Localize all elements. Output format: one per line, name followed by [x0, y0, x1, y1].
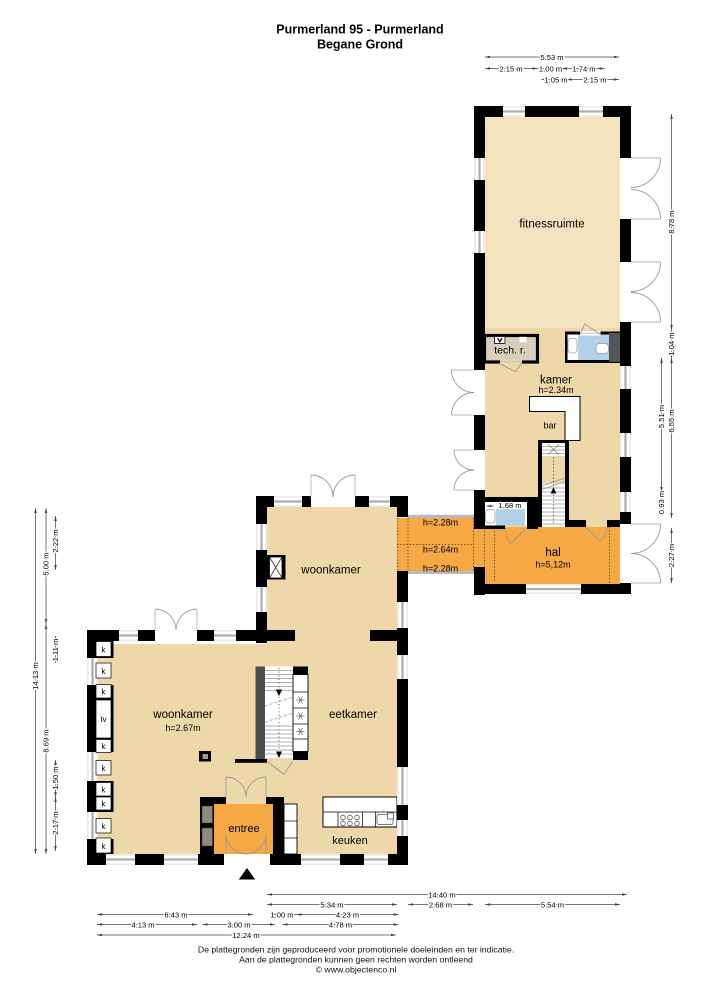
svg-text:k: k: [102, 667, 106, 676]
svg-text:4.23 m: 4.23 m: [336, 910, 359, 919]
svg-text:k: k: [102, 645, 106, 654]
svg-text:k: k: [102, 822, 106, 831]
svg-text:Aan de plattegronden kunnen ge: Aan de plattegronden kunnen geen rechten…: [239, 955, 473, 965]
svg-text:1.00 m: 1.00 m: [539, 64, 562, 73]
svg-text:k: k: [102, 842, 106, 851]
svg-text:2.15 m: 2.15 m: [499, 64, 522, 73]
svg-text:14.40 m: 14.40 m: [428, 890, 455, 899]
svg-text:h=5,12m: h=5,12m: [535, 560, 570, 570]
svg-text:1.04 m: 1.04 m: [667, 332, 676, 355]
svg-text:3.00 m: 3.00 m: [227, 920, 250, 929]
svg-text:De plattegronden zijn geproduc: De plattegronden zijn geproduceerd voor …: [198, 945, 514, 955]
svg-text:keuken: keuken: [332, 835, 367, 847]
svg-text:woonkamer: woonkamer: [152, 709, 213, 721]
svg-text:12.24 m: 12.24 m: [232, 931, 259, 940]
svg-text:5.53 m: 5.53 m: [540, 53, 563, 62]
svg-text:h=2.67m: h=2.67m: [165, 723, 200, 733]
svg-text:1.50 m: 1.50 m: [51, 766, 60, 789]
svg-text:6.43 m: 6.43 m: [164, 910, 187, 919]
svg-text:14.13 m: 14.13 m: [31, 662, 40, 689]
svg-text:1.74 m: 1.74 m: [572, 64, 595, 73]
svg-text:Begane Grond: Begane Grond: [317, 38, 403, 52]
svg-text:2.22 m: 2.22 m: [51, 529, 60, 552]
svg-text:5.34 m: 5.34 m: [320, 900, 343, 909]
svg-text:1.68 m: 1.68 m: [498, 501, 521, 510]
svg-text:5.54 m: 5.54 m: [541, 900, 564, 909]
svg-text:k: k: [102, 687, 106, 696]
svg-text:2.15 m: 2.15 m: [583, 75, 606, 84]
svg-text:8.78 m: 8.78 m: [667, 210, 676, 233]
svg-text:4.13 m: 4.13 m: [131, 920, 154, 929]
svg-text:2.68 m: 2.68 m: [429, 900, 452, 909]
svg-text:eetkamer: eetkamer: [329, 709, 377, 721]
svg-text:h=2.34m: h=2.34m: [538, 385, 573, 395]
svg-text:tv: tv: [100, 715, 106, 724]
svg-text:1.00 m: 1.00 m: [270, 910, 293, 919]
svg-text:h=2.28m: h=2.28m: [423, 564, 458, 574]
svg-text:k: k: [102, 764, 106, 773]
svg-text:fitnessruimte: fitnessruimte: [519, 219, 584, 231]
svg-text:5.00 m: 5.00 m: [42, 552, 51, 575]
svg-text:tech. r.: tech. r.: [494, 345, 526, 357]
svg-text:k: k: [102, 800, 106, 809]
svg-text:2.27 m: 2.27 m: [667, 544, 676, 567]
svg-text:Purmerland 95 - Purmerland: Purmerland 95 - Purmerland: [276, 23, 443, 37]
svg-text:© www.objectenco.nl: © www.objectenco.nl: [316, 965, 397, 975]
svg-text:0.93 m: 0.93 m: [657, 491, 666, 514]
svg-text:6.55 m: 6.55 m: [667, 409, 676, 432]
svg-text:woonkamer: woonkamer: [300, 565, 361, 577]
svg-text:8.69 m: 8.69 m: [42, 729, 51, 752]
svg-text:entree: entree: [228, 823, 259, 835]
svg-text:bar: bar: [543, 421, 556, 431]
svg-text:5.51 m: 5.51 m: [657, 405, 666, 428]
svg-text:k: k: [102, 785, 106, 794]
svg-text:k: k: [102, 742, 106, 751]
svg-text:h=2.64m: h=2.64m: [423, 545, 458, 555]
svg-text:h=2.28m: h=2.28m: [423, 518, 458, 528]
svg-text:2.17 m: 2.17 m: [51, 811, 60, 834]
svg-text:4.78 m: 4.78 m: [329, 920, 352, 929]
svg-text:1.05 m: 1.05 m: [544, 75, 567, 84]
svg-text:hal: hal: [545, 547, 560, 559]
svg-text:1.11 m: 1.11 m: [51, 639, 60, 662]
